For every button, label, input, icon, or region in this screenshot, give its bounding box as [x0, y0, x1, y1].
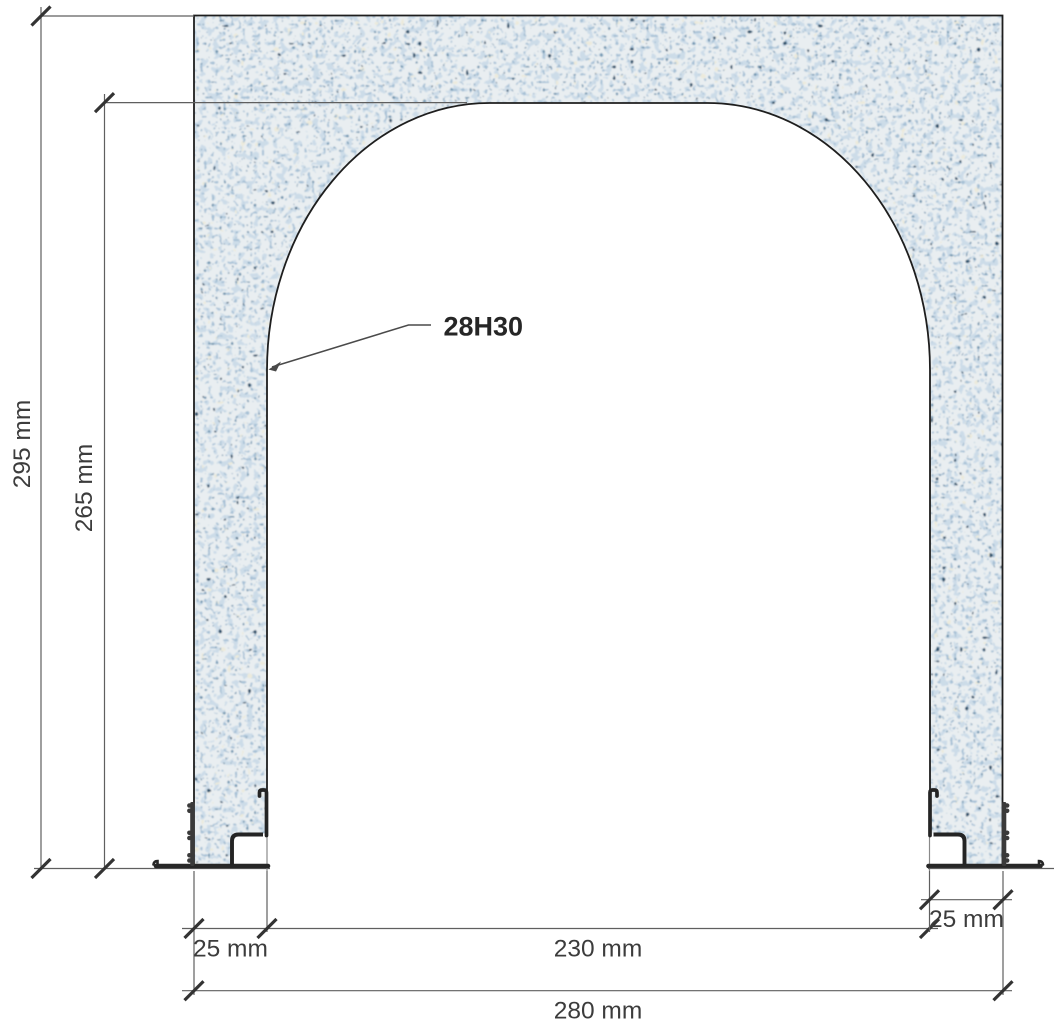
svg-text:28H30: 28H30	[444, 312, 524, 342]
svg-text:25 mm: 25 mm	[193, 936, 268, 963]
svg-text:25 mm: 25 mm	[929, 906, 1004, 933]
svg-text:280 mm: 280 mm	[554, 998, 643, 1025]
svg-text:295 mm: 295 mm	[9, 400, 36, 489]
svg-text:230 mm: 230 mm	[554, 936, 643, 963]
svg-text:265 mm: 265 mm	[71, 444, 98, 533]
